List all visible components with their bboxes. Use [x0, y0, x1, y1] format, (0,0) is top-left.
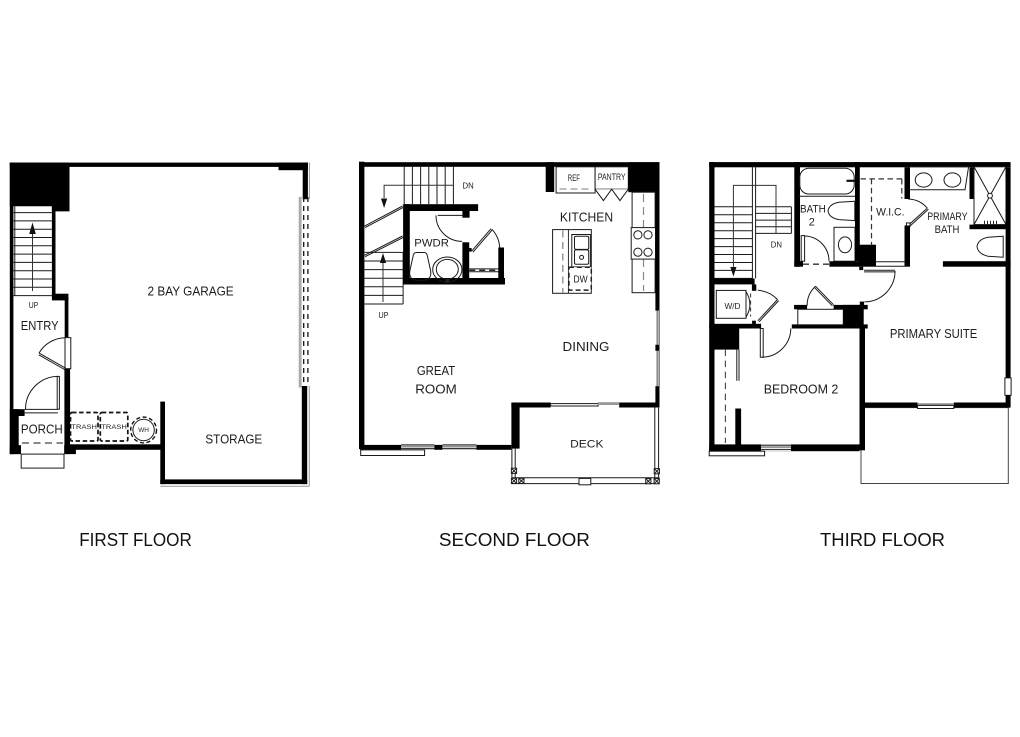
svg-text:W.I.C.: W.I.C.: [876, 207, 904, 219]
svg-text:ENTRY: ENTRY: [21, 319, 59, 333]
svg-text:TRASH: TRASH: [101, 424, 127, 431]
svg-text:DW: DW: [574, 275, 589, 286]
svg-text:BEDROOM 2: BEDROOM 2: [764, 381, 839, 396]
svg-text:SECOND FLOOR: SECOND FLOOR: [439, 530, 590, 550]
svg-text:PANTRY: PANTRY: [598, 172, 626, 182]
svg-text:W/D: W/D: [725, 302, 741, 311]
svg-text:PWDR: PWDR: [414, 237, 449, 249]
svg-text:PRIMARY: PRIMARY: [927, 211, 968, 223]
svg-text:DN: DN: [463, 181, 474, 190]
svg-text:STORAGE: STORAGE: [205, 432, 262, 446]
svg-text:THIRD FLOOR: THIRD FLOOR: [820, 530, 945, 550]
svg-text:DINING: DINING: [563, 339, 610, 354]
svg-text:TRASH: TRASH: [71, 424, 97, 431]
svg-text:DECK: DECK: [570, 438, 604, 450]
svg-text:KITCHEN: KITCHEN: [560, 209, 613, 224]
svg-text:WH: WH: [138, 427, 149, 434]
svg-text:GREAT: GREAT: [417, 364, 456, 378]
svg-text:PORCH: PORCH: [21, 421, 63, 436]
svg-text:UP: UP: [29, 301, 39, 310]
svg-text:UP: UP: [379, 311, 389, 320]
svg-text:BATH: BATH: [935, 224, 960, 236]
svg-text:2: 2: [809, 216, 815, 228]
svg-text:DN: DN: [771, 240, 782, 249]
svg-text:FIRST FLOOR: FIRST FLOOR: [79, 530, 192, 550]
svg-text:REF: REF: [568, 173, 581, 183]
svg-text:BATH: BATH: [800, 204, 826, 216]
svg-text:PRIMARY SUITE: PRIMARY SUITE: [890, 326, 978, 341]
svg-text:2 BAY GARAGE: 2 BAY GARAGE: [148, 284, 234, 299]
svg-text:ROOM: ROOM: [415, 383, 457, 397]
